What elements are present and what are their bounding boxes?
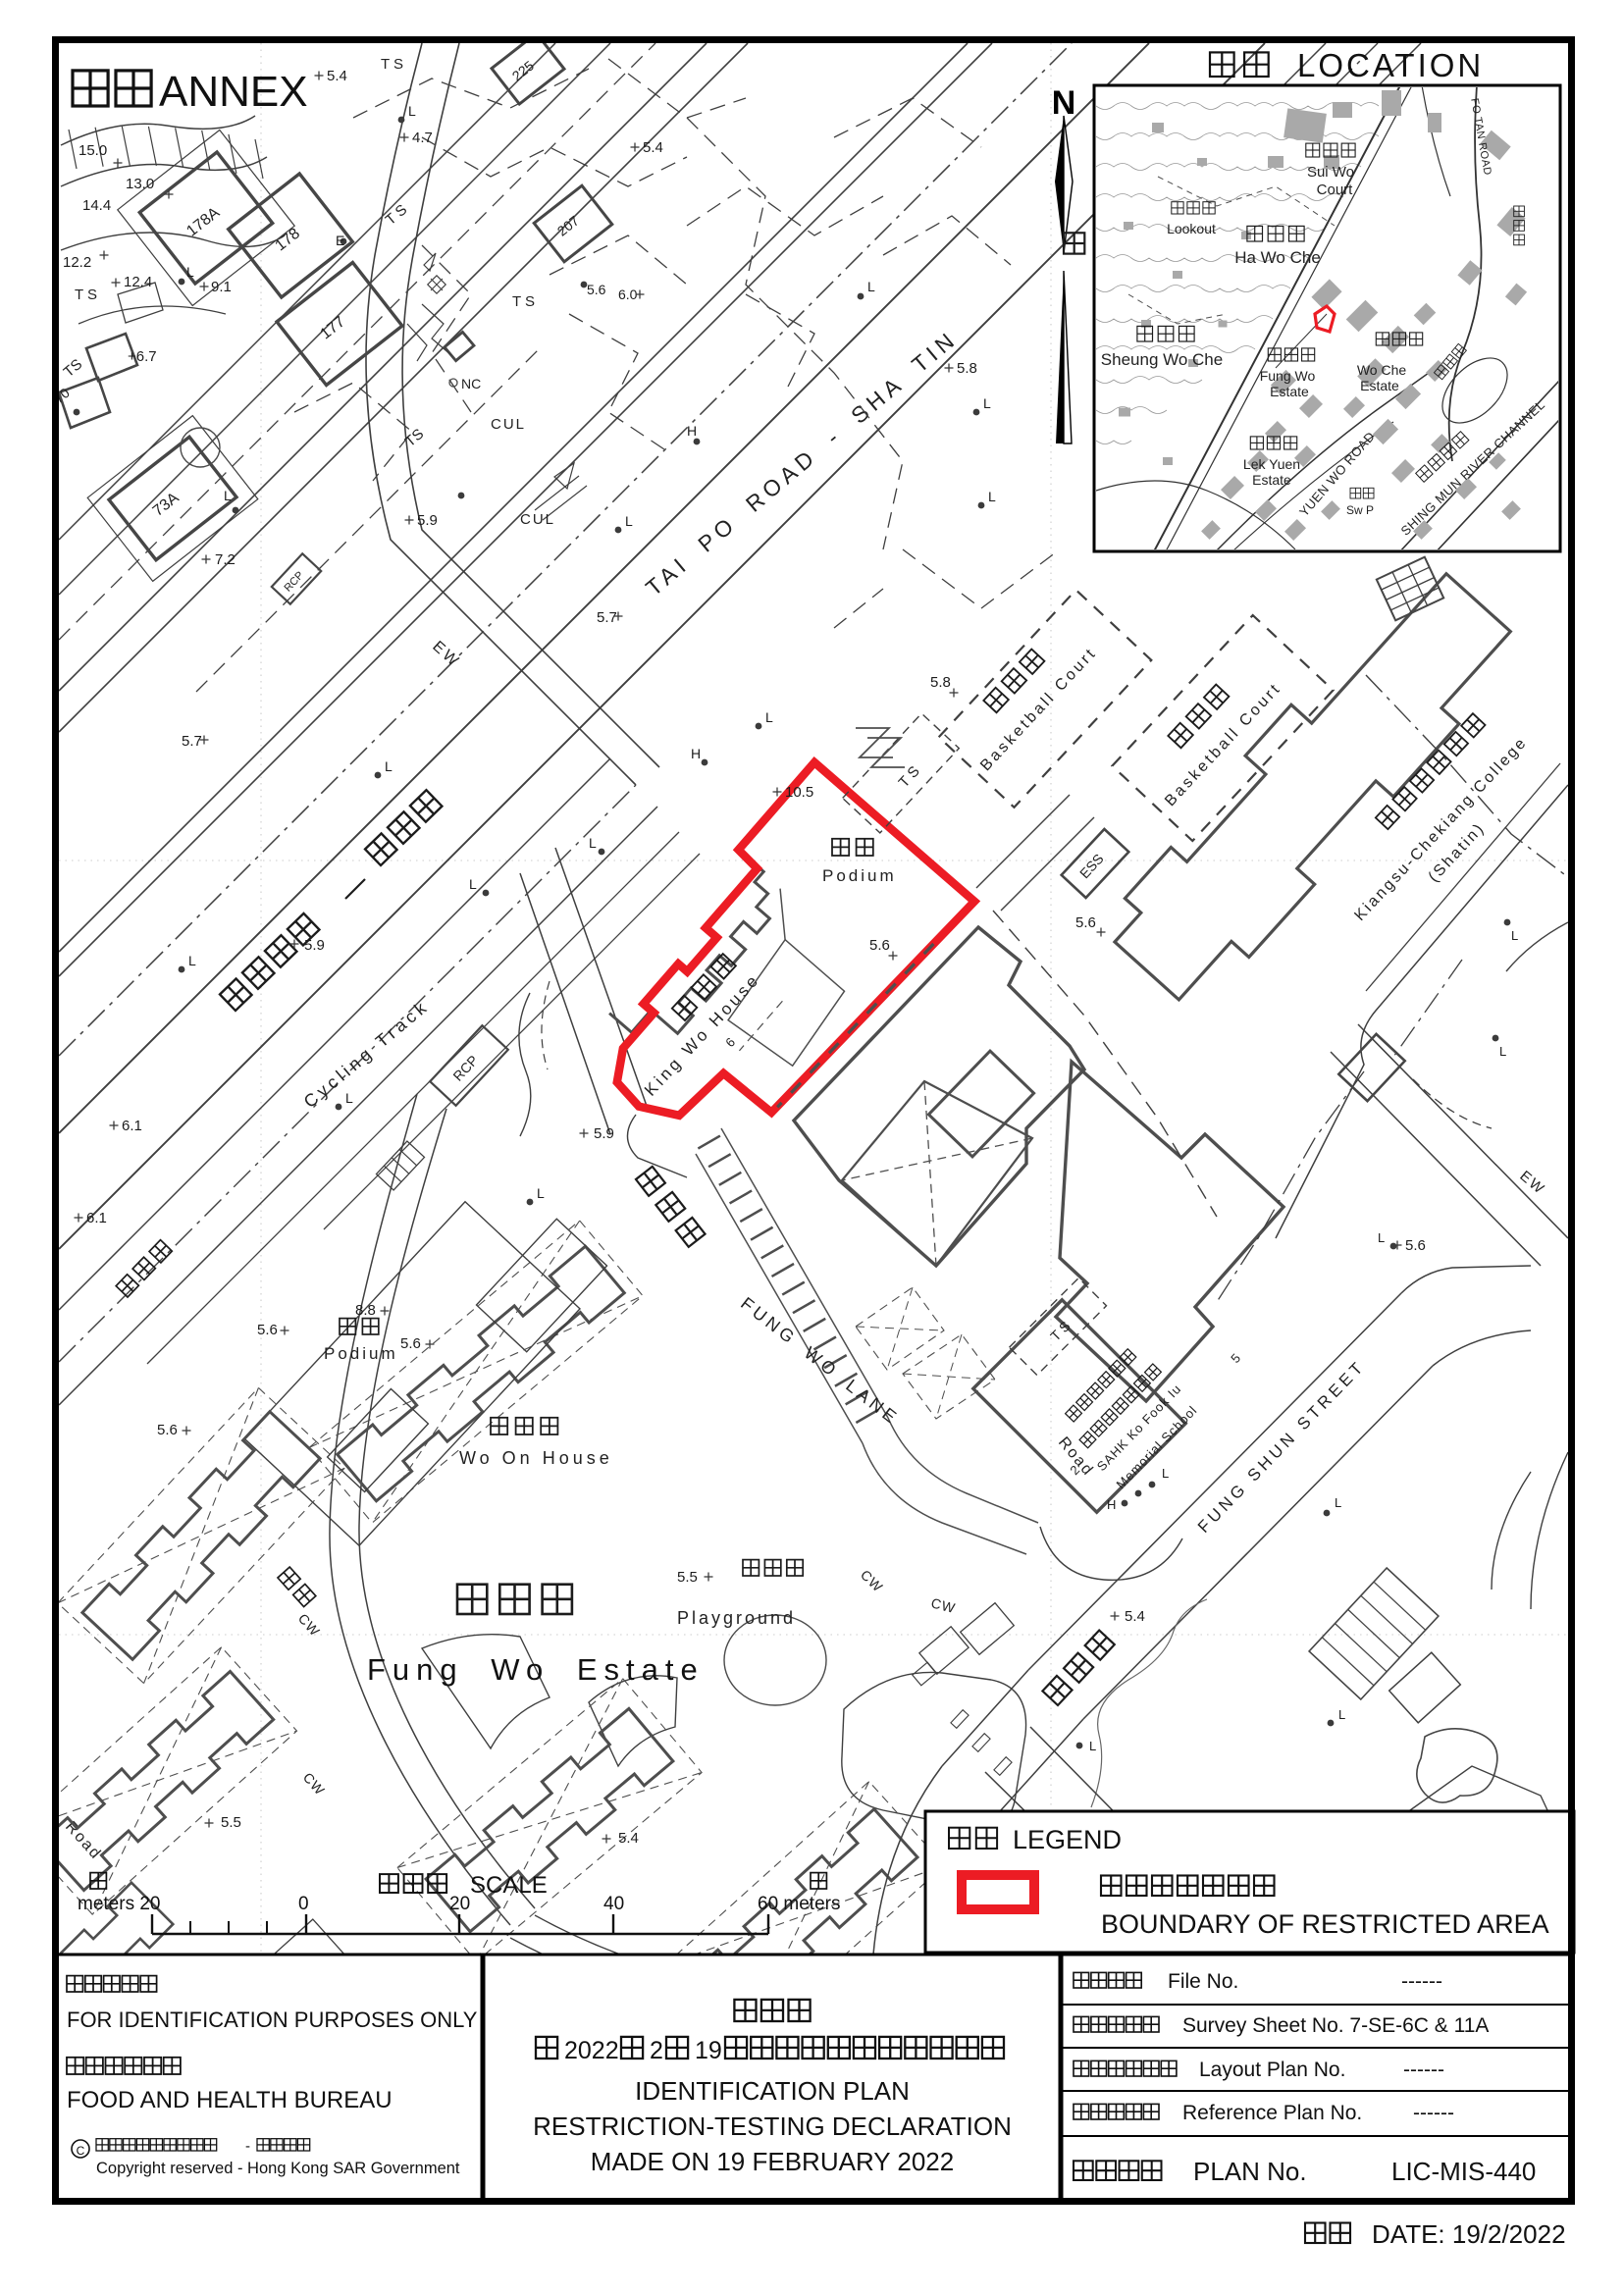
svg-text:L: L <box>988 489 996 504</box>
svg-text:15.0: 15.0 <box>79 142 107 159</box>
svg-text:Wo On House: Wo On House <box>459 1448 613 1468</box>
svg-text:Estate: Estate <box>1270 384 1309 399</box>
svg-text:Sw P: Sw P <box>1346 503 1374 517</box>
svg-text:5.7: 5.7 <box>597 609 617 626</box>
svg-text:DATE: 19/2/2022: DATE: 19/2/2022 <box>1372 2219 1566 2249</box>
svg-text:PLAN No.: PLAN No. <box>1193 2157 1307 2186</box>
svg-text:6.1: 6.1 <box>122 1118 142 1134</box>
svg-text:6.1: 6.1 <box>86 1210 107 1226</box>
svg-text:NC: NC <box>461 376 481 391</box>
svg-text:5.6: 5.6 <box>1405 1237 1426 1254</box>
svg-text:8.8: 8.8 <box>355 1302 376 1319</box>
svg-text:LEGEND: LEGEND <box>1013 1825 1122 1854</box>
svg-text:FOR IDENTIFICATION PURPOSES ON: FOR IDENTIFICATION PURPOSES ONLY <box>67 2007 478 2032</box>
svg-text:20: 20 <box>449 1894 470 1914</box>
svg-text:Reference Plan No.: Reference Plan No. <box>1182 2102 1362 2124</box>
svg-text:Survey Sheet No. 7-SE-6C &: Survey Sheet No. 7-SE-6C & 11A <box>1182 2014 1489 2037</box>
svg-text:H: H <box>687 423 697 439</box>
svg-text:N: N <box>1052 84 1076 122</box>
svg-text:E: E <box>336 233 344 248</box>
svg-text:------: ------ <box>1413 2102 1454 2124</box>
svg-text:5.5: 5.5 <box>221 1814 241 1831</box>
svg-text:Ha Wo Che: Ha Wo Che <box>1234 248 1321 267</box>
svg-text:Layout Plan No.: Layout Plan No. <box>1199 2059 1345 2081</box>
svg-text:L: L <box>469 876 477 892</box>
svg-text:File No.: File No. <box>1168 1970 1238 1993</box>
svg-text:5.9: 5.9 <box>594 1125 614 1142</box>
svg-text:H: H <box>1107 1497 1116 1512</box>
svg-text:6.0: 6.0 <box>618 287 638 302</box>
svg-text:5.4: 5.4 <box>643 139 663 156</box>
svg-text:60 meters: 60 meters <box>758 1894 840 1914</box>
svg-text:Podium: Podium <box>324 1344 398 1363</box>
svg-text:LIC-MIS-440: LIC-MIS-440 <box>1391 2157 1536 2186</box>
svg-text:L: L <box>1338 1707 1345 1722</box>
svg-text:Playground: Playground <box>677 1608 796 1628</box>
svg-text:T S: T S <box>381 56 403 73</box>
svg-text:Estate: Estate <box>1252 472 1291 488</box>
svg-text:L: L <box>1378 1230 1385 1245</box>
svg-text:L: L <box>765 709 773 725</box>
svg-text:L: L <box>983 395 991 411</box>
svg-text:L: L <box>345 1090 353 1106</box>
svg-text:Court: Court <box>1317 182 1354 198</box>
svg-text:CUL: CUL <box>520 511 555 528</box>
svg-text:Fung Wo: Fung Wo <box>1260 368 1316 384</box>
svg-text:5.6: 5.6 <box>400 1335 421 1352</box>
svg-text:L: L <box>537 1185 545 1201</box>
svg-text:------: ------ <box>1403 2059 1444 2081</box>
svg-text:CUL: CUL <box>491 416 526 433</box>
svg-text:L: L <box>1162 1466 1169 1481</box>
svg-text:5.9: 5.9 <box>417 512 438 529</box>
svg-text:10.5: 10.5 <box>785 784 813 801</box>
svg-text:RESTRICTION-TESTING DECLARATIO: RESTRICTION-TESTING DECLARATION <box>533 2112 1012 2141</box>
svg-text:L: L <box>589 835 597 851</box>
svg-text:2022: 2022 <box>564 2037 619 2064</box>
svg-text:L: L <box>625 513 633 529</box>
svg-text:5.6: 5.6 <box>587 282 606 297</box>
svg-text:5.6: 5.6 <box>1075 914 1096 931</box>
svg-text:C: C <box>77 2144 85 2158</box>
svg-text:5.8: 5.8 <box>957 360 977 377</box>
svg-text:L: L <box>186 264 194 280</box>
svg-text:5.8: 5.8 <box>930 674 951 691</box>
svg-text:L: L <box>1335 1495 1341 1510</box>
svg-text:12.4: 12.4 <box>124 274 152 290</box>
svg-text:MADE ON 19 FEBRUARY 2022: MADE ON 19 FEBRUARY 2022 <box>591 2147 954 2176</box>
svg-text:L: L <box>188 953 196 968</box>
svg-text:Podium: Podium <box>822 866 897 885</box>
svg-text:5.4: 5.4 <box>618 1830 639 1847</box>
svg-text:5.4: 5.4 <box>327 68 347 84</box>
svg-text:5.6: 5.6 <box>157 1422 178 1438</box>
svg-text:Fung Wo Estate: Fung Wo Estate <box>367 1652 705 1687</box>
svg-text:meters 20: meters 20 <box>78 1894 160 1914</box>
svg-text:5.6: 5.6 <box>257 1322 278 1338</box>
svg-text:L: L <box>385 758 393 774</box>
svg-text:7.2: 7.2 <box>215 551 236 568</box>
svg-text:L: L <box>1089 1739 1096 1753</box>
svg-text:Lek Yuen: Lek Yuen <box>1243 456 1300 472</box>
svg-text:Copyright reserved - Hong Kong: Copyright reserved - Hong Kong SAR Gover… <box>96 2160 460 2177</box>
svg-text:Wo Che: Wo Che <box>1357 362 1407 378</box>
svg-text:40: 40 <box>603 1894 624 1914</box>
svg-text:L: L <box>1511 928 1518 943</box>
svg-text:BOUNDARY OF RESTRICTED AREA: BOUNDARY OF RESTRICTED AREA <box>1101 1909 1549 1939</box>
svg-text:LOCATION: LOCATION <box>1297 47 1484 83</box>
svg-text:-: - <box>245 2138 250 2155</box>
svg-text:Sheung Wo Che: Sheung Wo Che <box>1101 350 1223 369</box>
svg-text:SCALE: SCALE <box>470 1872 548 1899</box>
svg-text:14.4: 14.4 <box>82 197 111 214</box>
svg-text:Lookout: Lookout <box>1167 221 1216 236</box>
svg-text:L: L <box>224 488 232 503</box>
svg-text:+6.7: +6.7 <box>128 348 157 365</box>
svg-text:2: 2 <box>650 2037 663 2064</box>
svg-text:13.0: 13.0 <box>126 176 154 192</box>
svg-text:12.2: 12.2 <box>63 254 91 271</box>
svg-text:T S: T S <box>75 287 97 303</box>
svg-text:9.1: 9.1 <box>211 279 232 295</box>
svg-text:19: 19 <box>695 2037 722 2064</box>
svg-text:5.6: 5.6 <box>869 937 890 954</box>
svg-text:Estate: Estate <box>1360 378 1399 393</box>
svg-text:ANNEX: ANNEX <box>159 68 308 116</box>
svg-text:T S: T S <box>512 293 535 310</box>
svg-text:5.4: 5.4 <box>1125 1608 1145 1625</box>
svg-text:FOOD AND HEALTH BUREAU: FOOD AND HEALTH BUREAU <box>67 2087 393 2113</box>
svg-text:Sui Wo: Sui Wo <box>1307 164 1354 181</box>
svg-text:IDENTIFICATION PLAN: IDENTIFICATION PLAN <box>635 2076 910 2106</box>
svg-text:H: H <box>691 746 701 761</box>
svg-text:L: L <box>867 279 875 294</box>
svg-text:L: L <box>408 103 416 119</box>
svg-text:0: 0 <box>298 1894 309 1914</box>
svg-text:5.7: 5.7 <box>182 733 202 750</box>
svg-text:------: ------ <box>1401 1970 1442 1993</box>
svg-text:5.9: 5.9 <box>304 937 325 954</box>
svg-text:5.5: 5.5 <box>677 1569 698 1586</box>
svg-text:L: L <box>1499 1044 1506 1059</box>
svg-text:4.7: 4.7 <box>412 130 433 146</box>
